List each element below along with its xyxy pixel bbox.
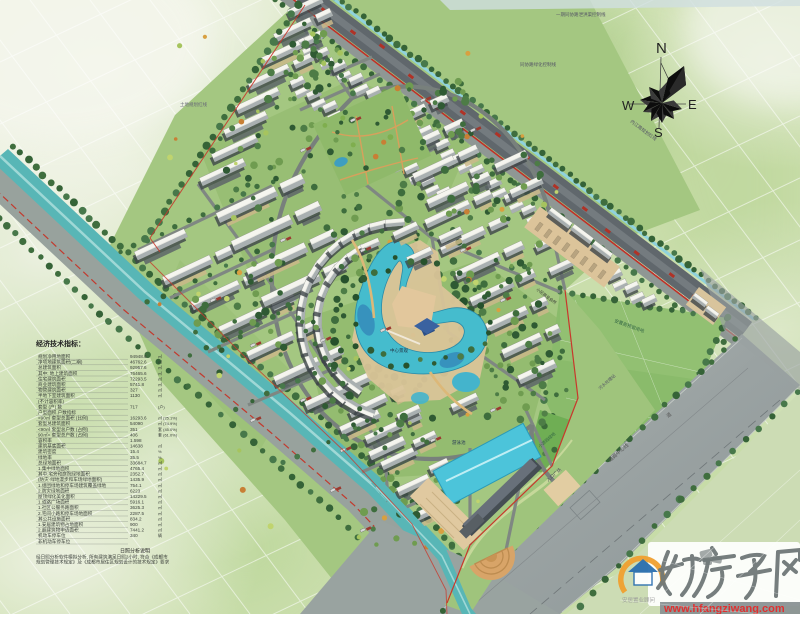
svg-text:W: W bbox=[622, 98, 635, 113]
svg-text:(户): (户) bbox=[158, 403, 165, 409]
svg-text:㎡: ㎡ bbox=[158, 504, 162, 510]
svg-text:834.2: 834.2 bbox=[130, 516, 142, 521]
svg-text:㎡: ㎡ bbox=[158, 510, 162, 516]
svg-text:㎡: ㎡ bbox=[158, 443, 162, 449]
svg-text:土地规划红线: 土地规划红线 bbox=[180, 101, 207, 108]
svg-text:5741.8: 5741.8 bbox=[130, 382, 144, 387]
svg-text:2287.5: 2287.5 bbox=[130, 511, 144, 516]
svg-text:15.4: 15.4 bbox=[130, 449, 139, 454]
svg-text:㎡: ㎡ bbox=[158, 515, 162, 521]
svg-text:16293.6: 16293.6 bbox=[130, 416, 147, 421]
svg-text:754.1: 754.1 bbox=[130, 483, 142, 488]
svg-text:㎡: ㎡ bbox=[158, 364, 162, 370]
svg-text:900: 900 bbox=[130, 522, 138, 527]
svg-text:N: N bbox=[656, 40, 667, 57]
svg-text:套 (45.0%): 套 (45.0%) bbox=[158, 426, 178, 432]
svg-text:㎡: ㎡ bbox=[158, 471, 162, 477]
svg-text:33684.7: 33684.7 bbox=[130, 460, 147, 465]
svg-text:辆: 辆 bbox=[158, 532, 162, 538]
svg-text:2352.7: 2352.7 bbox=[130, 472, 144, 477]
svg-text:%: % bbox=[158, 449, 162, 454]
svg-text:5916.1: 5916.1 bbox=[130, 500, 144, 505]
svg-text:游泳池: 游泳池 bbox=[452, 439, 466, 446]
svg-text:E: E bbox=[688, 97, 697, 112]
svg-text:套 (61.0%): 套 (61.0%) bbox=[158, 431, 178, 437]
svg-text:340: 340 bbox=[130, 533, 138, 538]
svg-text:1435.9: 1435.9 bbox=[130, 477, 144, 482]
svg-text:㎡ (74.9%): ㎡ (74.9%) bbox=[158, 420, 178, 426]
svg-text:35.5: 35.5 bbox=[130, 455, 139, 460]
svg-text:㎡: ㎡ bbox=[158, 482, 162, 488]
svg-text:㎡: ㎡ bbox=[158, 459, 162, 465]
svg-text:㎡: ㎡ bbox=[158, 375, 162, 381]
svg-text:3625.3: 3625.3 bbox=[130, 505, 144, 510]
svg-text:日照分析说明: 日照分析说明 bbox=[120, 547, 150, 554]
svg-text:76465.6: 76465.6 bbox=[130, 371, 147, 376]
svg-text:㎡: ㎡ bbox=[158, 387, 162, 393]
svg-text:4765.4: 4765.4 bbox=[130, 466, 144, 471]
svg-text:规划管理技术规定》及《成都市居住区规划设计的技术规定》要求: 规划管理技术规定》及《成都市居住区规划设计的技术规定》要求 bbox=[36, 558, 170, 565]
svg-text:14638: 14638 bbox=[130, 444, 143, 449]
svg-text:www.hfangziwang.com: www.hfangziwang.com bbox=[663, 603, 785, 614]
svg-text:㎡: ㎡ bbox=[158, 465, 162, 471]
svg-text:%: % bbox=[158, 455, 162, 460]
svg-text:717: 717 bbox=[130, 404, 138, 409]
svg-text:㎡: ㎡ bbox=[158, 493, 162, 499]
svg-text:㎡: ㎡ bbox=[158, 381, 162, 387]
svg-text:406: 406 bbox=[130, 432, 138, 437]
svg-text:6223: 6223 bbox=[130, 488, 141, 493]
svg-text:1.598: 1.598 bbox=[130, 438, 142, 443]
svg-text:72293.5: 72293.5 bbox=[130, 376, 147, 381]
svg-text:327: 327 bbox=[130, 388, 138, 393]
svg-text:非机动车停车位: 非机动车停车位 bbox=[38, 538, 71, 545]
svg-text:92957.6: 92957.6 bbox=[130, 365, 147, 370]
svg-text:中心景观: 中心景观 bbox=[390, 347, 408, 354]
svg-text:㎡: ㎡ bbox=[158, 487, 162, 493]
svg-text:54090: 54090 bbox=[130, 421, 143, 426]
svg-text:S: S bbox=[654, 125, 663, 140]
svg-text:㎡: ㎡ bbox=[158, 359, 162, 365]
svg-text:㎡: ㎡ bbox=[158, 527, 162, 533]
svg-text:㎡: ㎡ bbox=[158, 499, 162, 505]
svg-text:㎡: ㎡ bbox=[158, 353, 162, 359]
svg-text:㎡: ㎡ bbox=[158, 392, 162, 398]
svg-text:㎡: ㎡ bbox=[158, 476, 162, 482]
svg-text:1130: 1130 bbox=[130, 393, 140, 398]
svg-text:㎡ (25.1%): ㎡ (25.1%) bbox=[158, 415, 178, 421]
svg-text:14229.5: 14229.5 bbox=[130, 494, 147, 499]
svg-text:经济技术指标：: 经济技术指标： bbox=[36, 339, 85, 348]
svg-text:㎡: ㎡ bbox=[158, 370, 162, 376]
svg-text:94948.6: 94948.6 bbox=[130, 354, 147, 359]
svg-text:351: 351 bbox=[130, 427, 138, 432]
svg-text:一期同协路泄洪渠控制线: 一期同协路泄洪渠控制线 bbox=[556, 11, 606, 18]
svg-text:7441.2: 7441.2 bbox=[130, 528, 144, 533]
svg-text:同协路绿化控制线: 同协路绿化控制线 bbox=[520, 61, 556, 68]
svg-text:46762.6: 46762.6 bbox=[130, 360, 147, 365]
svg-text:㎡: ㎡ bbox=[158, 521, 162, 527]
